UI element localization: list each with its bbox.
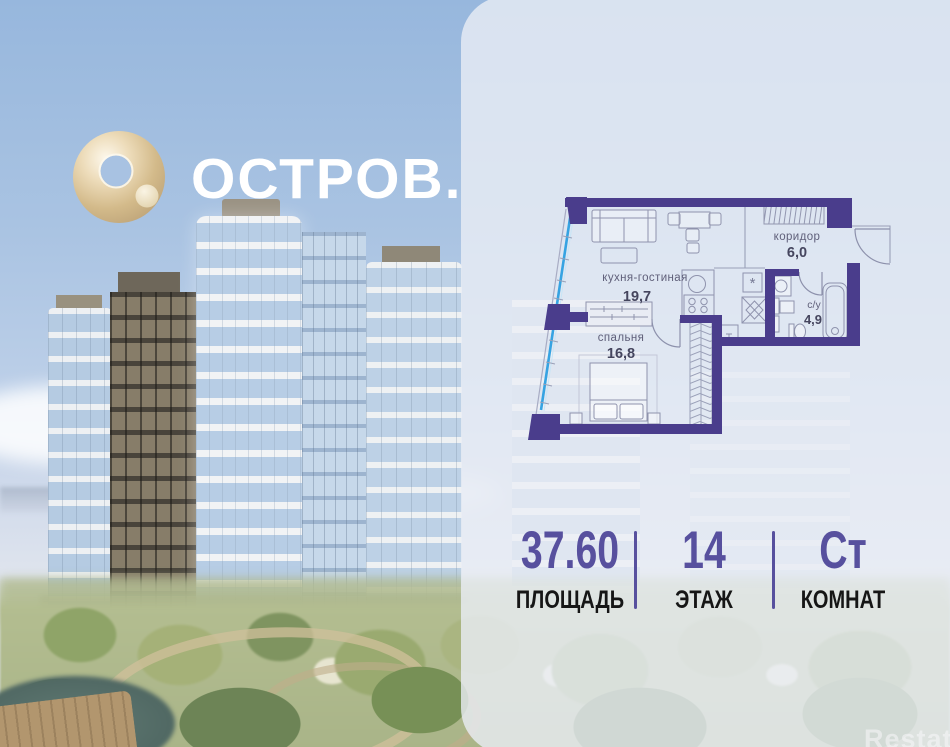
stat-floor-value: 14: [652, 524, 756, 577]
room-label: с/у: [807, 299, 821, 311]
stat-floor: 14 ЭТАЖ: [634, 524, 774, 613]
stat-area-label: ПЛОЩАДЬ: [514, 588, 626, 613]
logo-dot-icon: [136, 185, 159, 208]
flyer: ОСТРОВ.: [0, 0, 950, 747]
corridor-closet: [764, 206, 824, 224]
room-area: 4,9: [804, 312, 822, 327]
extractor-symbol: *: [750, 275, 756, 292]
room-area: 16,8: [607, 346, 635, 362]
bed: [570, 363, 660, 424]
floorplan: *: [515, 185, 950, 455]
room-area: 6,0: [787, 245, 807, 261]
wardrobe: [586, 302, 652, 326]
room-label: спальня: [598, 332, 644, 344]
stat-area-value: 37.60: [518, 524, 622, 577]
dining-set: [668, 212, 721, 253]
logo-text: ОСТРОВ.: [191, 146, 463, 212]
stat-rooms: Ст КОМНАТ: [773, 524, 913, 613]
watermark: Restate.ru: [864, 724, 950, 747]
room-label: кухня-гостиная: [602, 272, 687, 284]
room-area: 19,7: [623, 289, 651, 305]
room-label: коридор: [774, 231, 821, 243]
gold-donut-icon: [72, 130, 192, 240]
stat-rooms-value: Ст: [791, 524, 895, 577]
tower-roof: [118, 272, 180, 294]
stat-rooms-label: КОМНАТ: [787, 588, 899, 613]
coffee-table: [601, 248, 637, 263]
built-in-closet: [690, 322, 712, 425]
stat-area: 37.60 ПЛОЩАДЬ: [500, 524, 640, 613]
sofa: [592, 210, 656, 242]
stat-floor-label: ЭТАЖ: [648, 588, 760, 613]
